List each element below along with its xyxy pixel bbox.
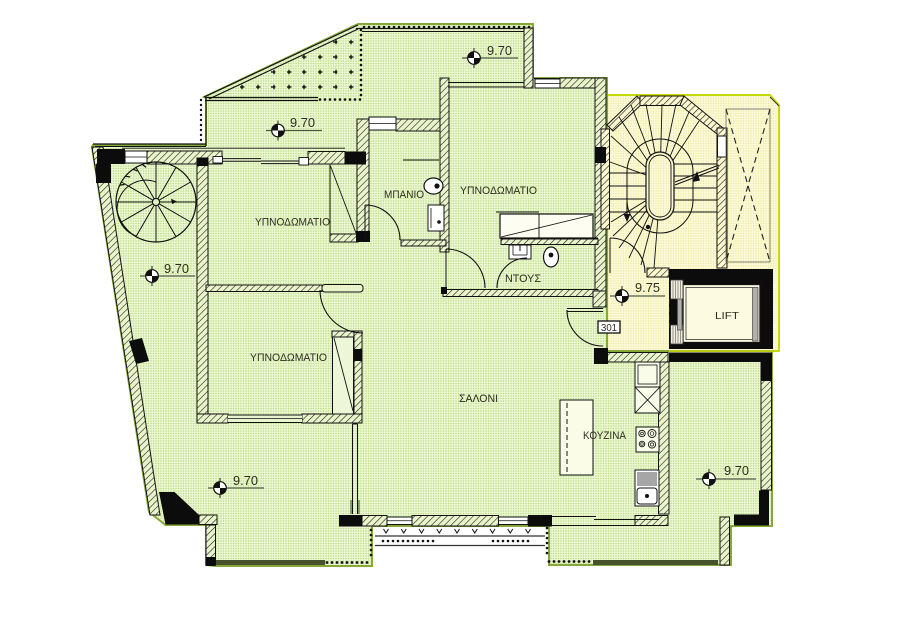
svg-text:ΜΠΑΝΙΟ: ΜΠΑΝΙΟ	[384, 189, 424, 201]
svg-text:ΚΟΥΖΙΝΑ: ΚΟΥΖΙΝΑ	[583, 430, 627, 442]
svg-text:9.70: 9.70	[487, 44, 512, 58]
svg-text:LIFT: LIFT	[715, 310, 740, 322]
svg-text:9.70: 9.70	[290, 116, 315, 130]
svg-text:9.75: 9.75	[635, 281, 660, 295]
svg-text:301: 301	[601, 323, 617, 334]
svg-text:9.70: 9.70	[724, 464, 749, 478]
svg-text:ΥΠΝΟΔΩΜΑΤΙΟ: ΥΠΝΟΔΩΜΑΤΙΟ	[250, 352, 327, 364]
svg-text:ΥΠΝΟΔΩΜΑΤΙΟ: ΥΠΝΟΔΩΜΑΤΙΟ	[255, 217, 330, 229]
svg-text:ΥΠΝΟΔΩΜΑΤΙΟ: ΥΠΝΟΔΩΜΑΤΙΟ	[460, 185, 537, 197]
svg-text:9.70: 9.70	[164, 262, 189, 276]
svg-text:ΝΤΟΥΣ: ΝΤΟΥΣ	[505, 273, 541, 285]
svg-text:ΣΑΛΟΝΙ: ΣΑΛΟΝΙ	[459, 393, 498, 405]
svg-text:9.70: 9.70	[233, 474, 258, 488]
